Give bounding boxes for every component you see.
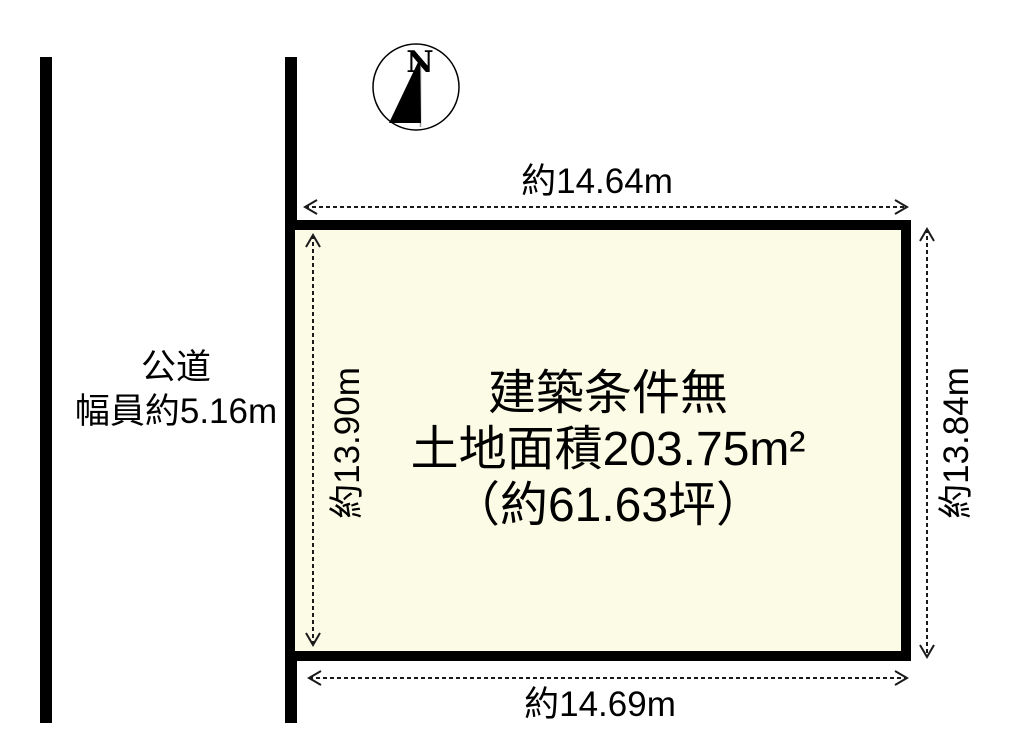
dimension-label-top: 約14.64m	[447, 160, 747, 204]
road-name: 公道	[26, 346, 326, 390]
plot-label: 建築条件無 土地面積203.75m² （約61.63坪）	[298, 366, 918, 534]
plot-area-label: 土地面積203.75m²	[298, 422, 918, 478]
dimension-label-bottom: 約14.69m	[450, 683, 750, 727]
compass-north-icon: N	[373, 44, 459, 130]
road-width-label: 幅員約5.16m	[26, 390, 326, 434]
dimension-label-right: 約13.84m	[935, 293, 979, 593]
compass-north-label: N	[406, 45, 433, 80]
plot-condition-label: 建築条件無	[298, 366, 918, 422]
dimension-arrow-right	[920, 229, 934, 657]
land-plot-diagram: N 約14.64m 約14.69m 約13.90m 約13	[0, 0, 1014, 753]
plot-tsubo-label: （約61.63坪）	[298, 478, 918, 534]
road-label: 公道 幅員約5.16m	[26, 346, 326, 434]
